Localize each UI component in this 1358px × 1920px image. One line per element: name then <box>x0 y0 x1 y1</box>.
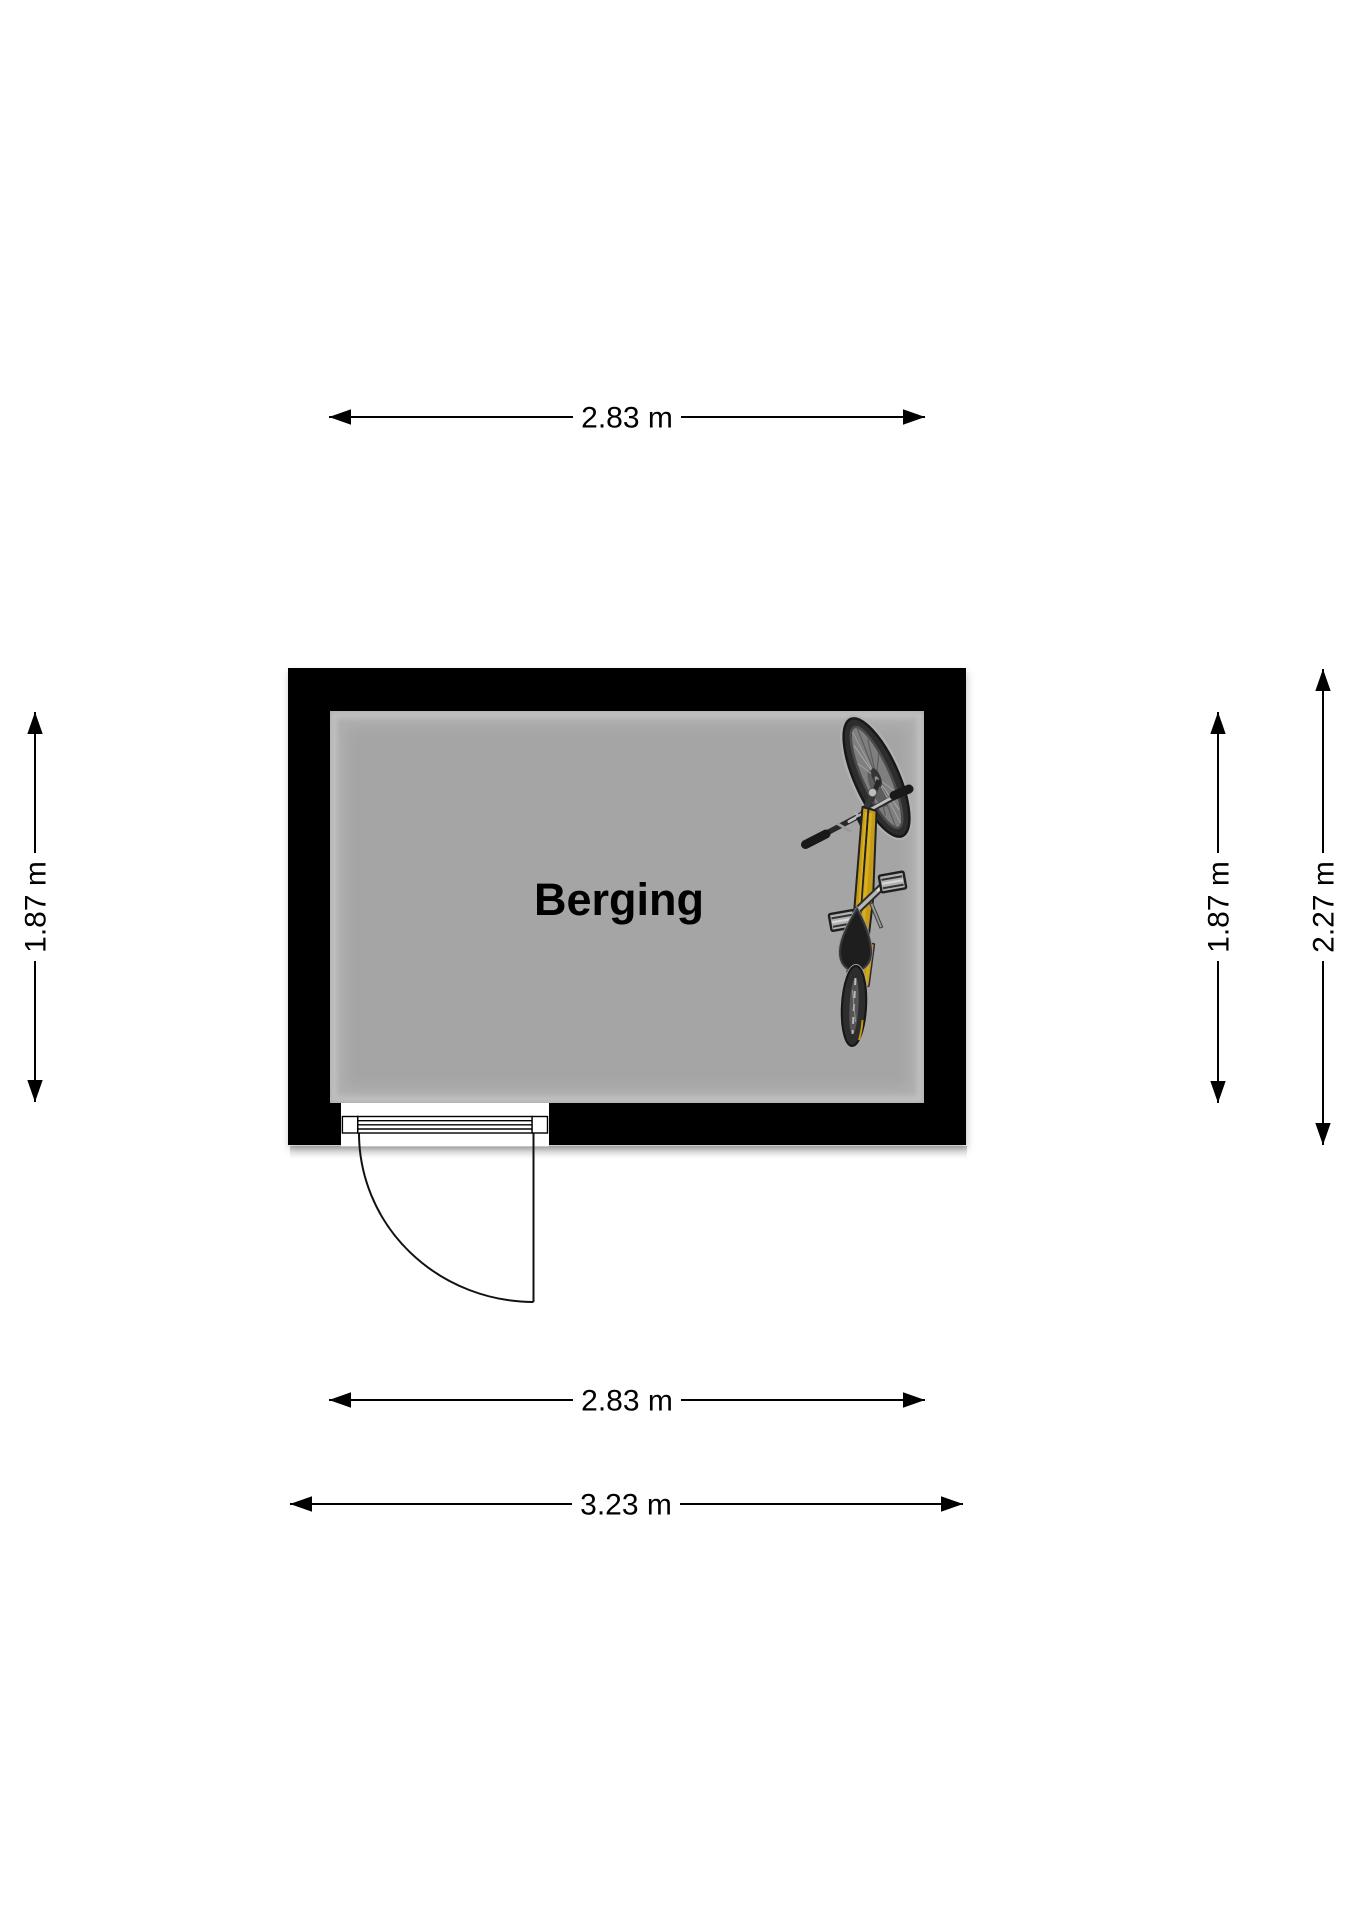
svg-text:1.87 m: 1.87 m <box>20 861 53 953</box>
svg-text:2.83 m: 2.83 m <box>581 402 673 435</box>
svg-text:2.27 m: 2.27 m <box>1308 861 1341 953</box>
svg-text:Berging: Berging <box>534 874 704 925</box>
svg-text:2.83 m: 2.83 m <box>581 1385 673 1418</box>
svg-text:1.87 m: 1.87 m <box>1203 861 1236 953</box>
svg-text:3.23 m: 3.23 m <box>580 1489 672 1522</box>
